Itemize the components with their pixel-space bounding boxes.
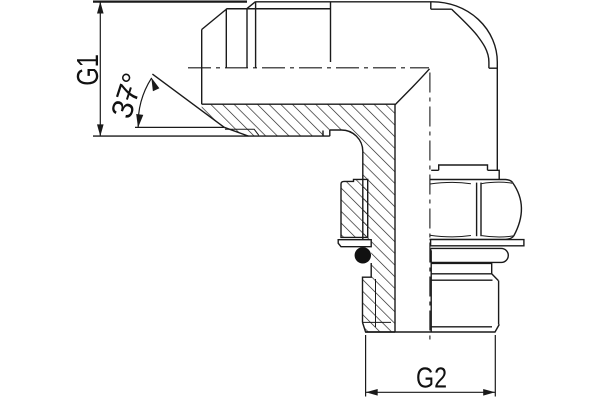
svg-text:G1: G1 [71, 54, 105, 86]
svg-text:G2: G2 [416, 363, 447, 395]
